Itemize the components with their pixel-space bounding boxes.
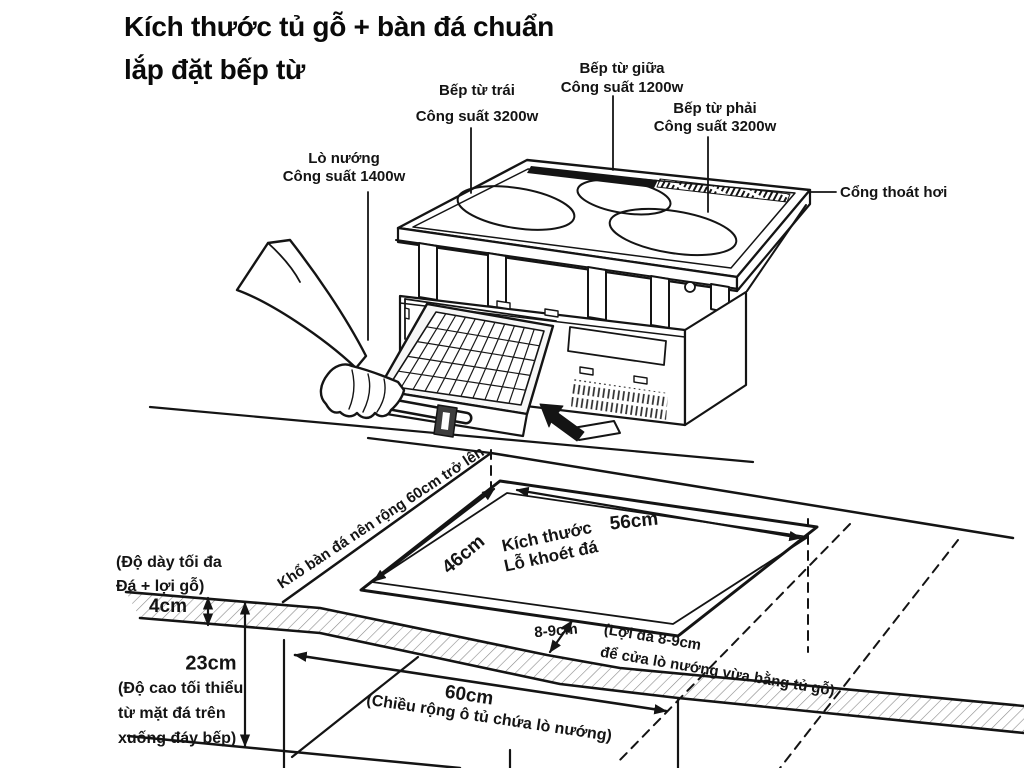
hand-pulling-drawer bbox=[237, 240, 404, 418]
callout-middle-burner-name: Bếp từ giữa bbox=[561, 59, 684, 78]
cabinet-height-note-line3: xuống đáy bếp) bbox=[118, 726, 243, 751]
callout-right-burner-name: Bếp từ phải bbox=[654, 100, 777, 118]
callout-left-burner: Bếp từ trái Công suất 3200w bbox=[416, 78, 539, 130]
page-title-line1: Kích thước tủ gỗ + bàn đá chuẩn bbox=[124, 5, 554, 48]
dim-56cm-value: 56cm bbox=[609, 509, 660, 535]
callout-left-burner-name: Bếp từ trái bbox=[416, 78, 539, 104]
screw-hole bbox=[685, 282, 695, 292]
callout-vent: Cổng thoát hơi bbox=[840, 184, 947, 201]
callout-right-burner: Bếp từ phải Công suất 3200w bbox=[654, 100, 777, 136]
callout-vent-name: Cổng thoát hơi bbox=[840, 184, 947, 201]
dim-4cm-value: 4cm bbox=[149, 596, 187, 617]
stone-thickness-note-line1: (Độ dày tối đa bbox=[116, 551, 222, 575]
cabinet-height-note-line1: (Độ cao tối thiểu bbox=[118, 676, 243, 701]
cabinet-height-note-line2: từ mặt đá trên bbox=[118, 701, 243, 726]
stone-thickness-note: (Độ dày tối đa Đá + lợi gỗ) bbox=[116, 551, 222, 599]
arm bbox=[237, 240, 366, 368]
cabinet-height-note: (Độ cao tối thiểu từ mặt đá trên xuống đ… bbox=[118, 676, 243, 751]
countertop-diagram bbox=[126, 450, 1024, 768]
dim-23cm-label: 23cm bbox=[185, 653, 236, 676]
callout-oven: Lò nướng Công suất 1400w bbox=[283, 150, 406, 186]
cooktop-illustration bbox=[150, 96, 836, 462]
callout-middle-burner-power: Công suất 1200w bbox=[561, 78, 684, 97]
dim-8-9cm-value: 8-9cm bbox=[534, 621, 579, 642]
callout-left-burner-power: Công suất 3200w bbox=[416, 104, 539, 130]
callout-oven-power: Công suất 1400w bbox=[283, 168, 406, 186]
dim-4cm-label: 4cm bbox=[149, 596, 187, 618]
callout-oven-name: Lò nướng bbox=[283, 150, 406, 168]
callout-right-burner-power: Công suất 3200w bbox=[654, 118, 777, 136]
callout-middle-burner: Bếp từ giữa Công suất 1200w bbox=[561, 59, 684, 97]
installation-infographic: Kích thước tủ gỗ + bàn đá chuẩn lắp đặt … bbox=[0, 0, 1024, 768]
dim-23cm-value: 23cm bbox=[185, 653, 236, 675]
